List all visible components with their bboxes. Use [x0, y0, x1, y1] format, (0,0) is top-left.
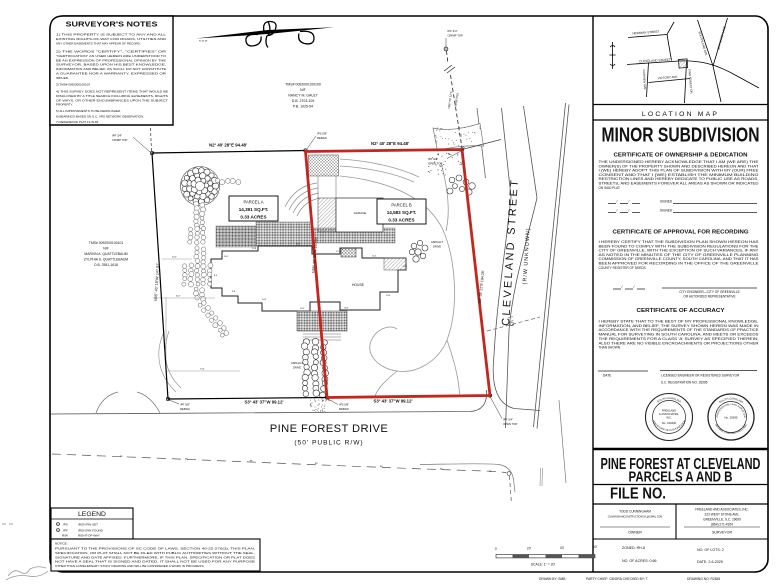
svg-text:IPS: IPS: [63, 522, 68, 526]
svg-text:& ASSOCIATES,: & ASSOCIATES,: [659, 412, 679, 416]
svg-text:3) TMS# 0092000100103: 3) TMS# 0092000100103: [56, 83, 90, 87]
svg-text:/: /: [629, 209, 630, 213]
svg-text:IMPLIED.: IMPLIED.: [56, 76, 69, 80]
svg-text:CITY ENGINEER—CITY OF GREENVIL: CITY ENGINEER—CITY OF GREENVILLE: [679, 290, 739, 294]
svg-text:ASPHALT: ASPHALT: [291, 361, 303, 365]
svg-text:OWNER: OWNER: [628, 531, 642, 535]
svg-text:N/F: N/F: [103, 247, 108, 251]
svg-text:60': 60': [593, 545, 598, 549]
svg-text:ZONED: RH-8: ZONED: RH-8: [622, 546, 645, 550]
svg-text:GARAGE: GARAGE: [354, 211, 367, 215]
svg-text:A GUARANTEE NOR A WARRANTY, EX: A GUARANTEE NOR A WARRANTY, EXPRESSED OR: [56, 72, 167, 76]
svg-text:PARCELS A AND B: PARCELS A AND B: [629, 470, 733, 486]
svg-text:R/W: R/W: [62, 534, 68, 538]
svg-text:SIGNED: SIGNED: [660, 209, 673, 213]
svg-text:SPECIFICATION, OR PLAT SHALL N: SPECIFICATION, OR PLAT SHALL NOT BE FILE…: [55, 551, 255, 555]
svg-text:PINE FOREST DRIVE: PINE FOREST DRIVE: [270, 423, 389, 435]
svg-text:P.B. 1025-54: P.B. 1025-54: [293, 105, 313, 109]
svg-text:NANCY M. GAULT: NANCY M. GAULT: [288, 94, 318, 98]
svg-text:TODD CUNNINGHAM: TODD CUNNINGHAM: [619, 510, 651, 514]
svg-text:OF WAYS, OR OTHER ENCUMBRANCES: OF WAYS, OR OTHER ENCUMBRANCES UPON THE …: [56, 98, 168, 102]
svg-text:DRIVE: DRIVE: [293, 366, 301, 370]
svg-text:IPF: IPF: [63, 528, 68, 532]
svg-text:ALSO THERE ARE NO VISIBLE ENCR: ALSO THERE ARE NO VISIBLE ENCROACHMENTS …: [599, 341, 760, 345]
svg-text:CRIMP TOP: CRIMP TOP: [112, 138, 128, 142]
svg-text:1) THIS PROPERTY IS SUBJECT TO: 1) THIS PROPERTY IS SUBJECT TO ANY AND A…: [56, 33, 167, 37]
svg-text:OTHER THAN A PRELIMINARY STUDY: OTHER THAN A PRELIMINARY STUDY DRAWING A…: [55, 564, 204, 568]
svg-text:OR AUTORIZED REPRESENTATIVE: OR AUTORIZED REPRESENTATIVE: [683, 295, 735, 299]
svg-text:6) BEARINGS BASED ON S.C. VRS: 6) BEARINGS BASED ON S.C. VRS NETWORK OB…: [56, 115, 144, 119]
svg-text:THAN SHOWN.: THAN SHOWN.: [599, 346, 621, 350]
svg-text:DATE: DATE: [603, 374, 611, 378]
svg-text:ANY OTHER EASEMENTS THAT MAY A: ANY OTHER EASEMENTS THAT MAY APPEAR OF R…: [56, 41, 141, 45]
svg-text:NOT HAVE A SEAL THAT IS SIGNED: NOT HAVE A SEAL THAT IS SIGNED AND DATED…: [55, 560, 255, 564]
svg-text:0.33 ACRES: 0.33 ACRES: [240, 215, 266, 220]
svg-text:34.7': 34.7': [176, 296, 181, 298]
svg-text:IPF 3/4": IPF 3/4": [503, 418, 513, 422]
svg-text:(50' PUBLIC R/W): (50' PUBLIC R/W): [294, 440, 363, 447]
svg-text:14,583 SQ.FT.: 14,583 SQ.FT.: [387, 210, 417, 215]
svg-text:DISCLOSED BY A TITLE SEARCH IN: DISCLOSED BY A TITLE SEARCH INCLUDING EA…: [56, 94, 168, 98]
svg-text:7) REFERENCE PLAT 12-W-83: 7) REFERENCE PLAT 12-W-83: [56, 120, 99, 124]
svg-text:ZYLPHIA S. QUATTLEBAUM: ZYLPHIA S. QUATTLEBAUM: [84, 258, 128, 262]
svg-text:PARCEL B: PARCEL B: [391, 203, 411, 208]
svg-text:MINOR SUBDIVISION: MINOR SUBDIVISION: [602, 124, 760, 147]
svg-text:5) ALL IMPROVEMENTS TO BE DEMO: 5) ALL IMPROVEMENTS TO BE DEMOLISHED.: [56, 109, 121, 113]
svg-text:IPS 5/8": IPS 5/8": [339, 403, 349, 407]
svg-text:No. C00430: No. C00430: [662, 421, 677, 425]
svg-text:IRON PIN SET: IRON PIN SET: [78, 522, 98, 526]
svg-text:TMS# 0092000100101: TMS# 0092000100101: [89, 241, 124, 245]
svg-text:OPEN TOP: OPEN TOP: [428, 162, 442, 166]
svg-text:RIGHT-OF-WAY: RIGHT-OF-WAY: [78, 534, 100, 538]
svg-text:ON SAID PLAT.: ON SAID PLAT.: [599, 186, 621, 190]
svg-text:/: /: [634, 285, 635, 289]
svg-text:CUNNINGHAMCONSTRUCTIONGVL@GMAI: CUNNINGHAMCONSTRUCTIONGVL@GMAIL.COM: [608, 516, 662, 519]
svg-text:CERTIFICATE OF ACCURACY: CERTIFICATE OF ACCURACY: [637, 308, 725, 314]
svg-text:N2° 40' 28"E 94.48': N2° 40' 28"E 94.48': [209, 143, 247, 148]
svg-text:N2° 40' 28"E 94.48': N2° 40' 28"E 94.48': [371, 141, 409, 146]
svg-text:NOTICE:: NOTICE:: [55, 542, 68, 546]
svg-text:0': 0': [495, 547, 498, 551]
svg-text:MARVIN A. QUATTLEBAUM: MARVIN A. QUATTLEBAUM: [84, 252, 127, 256]
svg-text:IPF 5/8": IPF 5/8": [180, 403, 190, 407]
svg-text:DRIVE: DRIVE: [433, 245, 441, 249]
svg-text:14,391 SQ.FT.: 14,391 SQ.FT.: [239, 207, 269, 212]
svg-text:COUNTY REGISTER OF DEEDS.: COUNTY REGISTER OF DEEDS.: [599, 266, 647, 270]
svg-text:N: 64.69: N: 64.69: [199, 41, 208, 43]
svg-text:"CERTIFICATION" AS USED HEREIN: "CERTIFICATION" AS USED HEREIN ARE UNDER…: [56, 54, 167, 58]
svg-text:S3° 43' 37"W 99.12': S3° 43' 37"W 99.12': [373, 399, 412, 404]
svg-text:2) THE WORDS "CERTIFY", "CERTI: 2) THE WORDS "CERTIFY", "CERTIFIES" OR: [56, 50, 167, 54]
svg-text:SURVEYOR, BASED UPON HIS BEST: SURVEYOR, BASED UPON HIS BEST KNOWLEDGE,: [56, 63, 166, 67]
svg-text:HOUSE: HOUSE: [352, 283, 365, 287]
svg-text:IPS 5/8": IPS 5/8": [317, 132, 327, 136]
svg-text:ASPHALT: ASPHALT: [431, 240, 443, 244]
svg-text:LICENSED ENGINEER OR REGISTERE: LICENSED ENGINEER OR REGISTERED SURVEYOR: [661, 374, 740, 378]
svg-text:FREELAND AND ASSOCIATES, INC.: FREELAND AND ASSOCIATES, INC.: [695, 508, 749, 512]
svg-text:CERTIFICATE OF APPROVAL FOR: CERTIFICATE OF APPROVAL FOR RECORDING: [613, 230, 749, 236]
svg-text:34.0': 34.0': [172, 257, 177, 259]
svg-text:CERTIFICATE OF OWNERSHIP &: CERTIFICATE OF OWNERSHIP & DEDICATION: [614, 153, 748, 159]
svg-text:NO. OF ACRES: 0.66: NO. OF ACRES: 0.66: [622, 559, 657, 563]
svg-text:CRIMP TOP: CRIMP TOP: [448, 34, 464, 38]
svg-text:IRON PIN FOUND: IRON PIN FOUND: [78, 528, 104, 532]
svg-text:DRAWING NO: R2845: DRAWING NO: R2845: [687, 577, 720, 581]
svg-text:SIGNED: SIGNED: [660, 200, 673, 204]
svg-text:REBAR: REBAR: [317, 136, 327, 140]
svg-text:20': 20': [527, 547, 532, 551]
svg-text:SIGNATURE AND DATE AFFIXED. FU: SIGNATURE AND DATE AFFIXED. FURTHERMORE,…: [55, 555, 255, 559]
svg-text:D.B. 2703-109: D.B. 2703-109: [292, 99, 315, 103]
svg-text:EXISTING RIGHTS-OF-WAY FOR ROA: EXISTING RIGHTS-OF-WAY FOR ROADS, UTILIT…: [56, 37, 167, 41]
svg-text:40': 40': [560, 546, 565, 550]
svg-text:N/F: N/F: [300, 88, 306, 92]
svg-text:TMS# 0092000100100: TMS# 0092000100100: [285, 83, 321, 87]
svg-text:DRAWN BY: SMB: DRAWN BY: SMB: [539, 577, 566, 581]
svg-text:PARTY CHIEF: CB/GRA CHECKED: PARTY CHIEF: CB/GRA CHECKED BY: T: [586, 577, 648, 581]
svg-text:PURSUANT TO THE PROVISIONS OF: PURSUANT TO THE PROVISIONS OF SC CODE OF…: [55, 547, 255, 551]
svg-text:/: /: [622, 285, 623, 289]
svg-text:FILE NO.: FILE NO.: [610, 486, 666, 503]
svg-text:INC.: INC.: [666, 416, 672, 420]
svg-text:NO. OF LOTS: 2: NO. OF LOTS: 2: [697, 548, 724, 552]
svg-text:IPF 3/4": IPF 3/4": [112, 134, 122, 138]
svg-text:S3° 43' 37"W 99.12': S3° 43' 37"W 99.12': [244, 400, 283, 405]
svg-text:REBAR: REBAR: [180, 407, 190, 411]
svg-text:PARCEL A: PARCEL A: [243, 200, 263, 205]
svg-text:SURVEYOR'S NOTES: SURVEYOR'S NOTES: [66, 20, 158, 29]
svg-text:74.4': 74.4': [200, 369, 205, 371]
svg-text:DATE: 2-6-2025: DATE: 2-6-2025: [697, 560, 723, 564]
svg-text:(864) 271-4924: (864) 271-4924: [711, 523, 733, 527]
svg-text:No. 26595: No. 26595: [725, 416, 738, 420]
svg-text:SCALE: 1" = 20': SCALE: 1" = 20': [531, 563, 556, 567]
svg-text:/: /: [629, 200, 630, 204]
svg-text:SURVEYOR: SURVEYOR: [712, 531, 733, 535]
svg-text:IPF 3/4": IPF 3/4": [448, 29, 458, 33]
svg-text:INFORMATION AND BELIEF, AS SUC: INFORMATION AND BELIEF, AS SUCH, DO NOT …: [56, 67, 166, 71]
svg-text:S.C. REGISTRATION NO. 26595: S.C. REGISTRATION NO. 26595: [661, 381, 708, 385]
svg-text:/: /: [617, 209, 618, 213]
svg-text:/: /: [617, 200, 618, 204]
svg-text:OPEN TOP: OPEN TOP: [503, 422, 517, 426]
svg-text:D.B. 2551-1618: D.B. 2551-1618: [94, 263, 118, 267]
svg-text:0.33 ACRES: 0.33 ACRES: [388, 218, 414, 223]
svg-text:FREELAND: FREELAND: [662, 409, 676, 413]
svg-text:LOCATION MAP: LOCATION MAP: [642, 111, 719, 118]
svg-text:STREETS, AND EASEMENTS FOREVER: STREETS, AND EASEMENTS FOREVER ALL AREAS…: [599, 182, 760, 186]
svg-text:4) THIS SURVEY DOES NOT REPRES: 4) THIS SURVEY DOES NOT REPRESENT ITEMS …: [56, 90, 168, 94]
svg-text:323 WEST STONE AVE.: 323 WEST STONE AVE.: [705, 513, 740, 517]
svg-text:PROPERTY.: PROPERTY.: [56, 103, 73, 107]
svg-text:GREENVILLE, S.C. 29609: GREENVILLE, S.C. 29609: [703, 518, 741, 522]
svg-text:BE AN EXPRESSION OF PROFESSION: BE AN EXPRESSION OF PROFESSIONAL OPINION…: [56, 58, 166, 62]
svg-text:REBAR: REBAR: [339, 407, 349, 411]
svg-text:LEGEND: LEGEND: [78, 511, 106, 518]
svg-text:IPF 3/4": IPF 3/4": [428, 157, 438, 161]
